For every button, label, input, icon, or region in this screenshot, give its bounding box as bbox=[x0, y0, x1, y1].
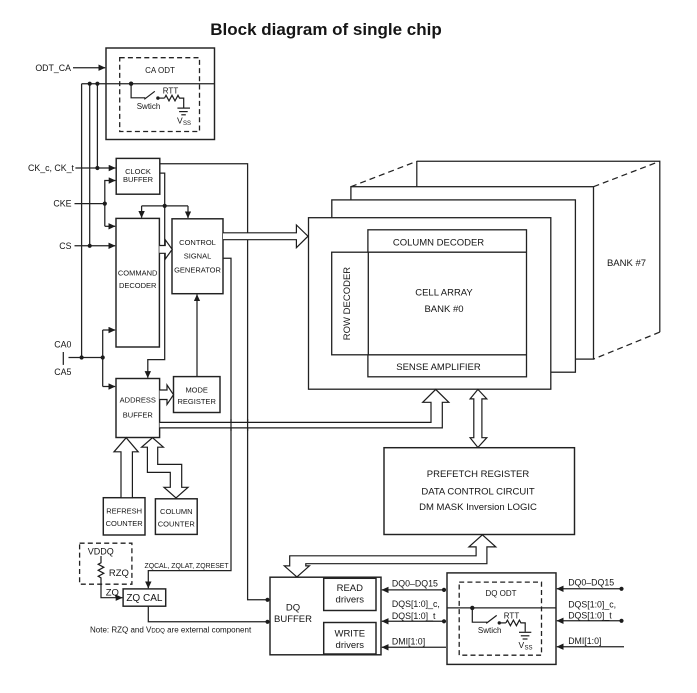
svg-text:CONTROL: CONTROL bbox=[179, 238, 216, 247]
svg-text:DQ: DQ bbox=[286, 602, 300, 613]
svg-text:ZQ CAL: ZQ CAL bbox=[126, 593, 163, 604]
svg-text:RZQ: RZQ bbox=[109, 568, 129, 579]
svg-text:COUNTER: COUNTER bbox=[106, 519, 144, 528]
svg-text:CA0: CA0 bbox=[54, 339, 71, 349]
svg-text:DATA CONTROL CIRCUIT: DATA CONTROL CIRCUIT bbox=[421, 487, 534, 498]
svg-text:COLUMN: COLUMN bbox=[160, 507, 193, 516]
svg-text:ODT_CA: ODT_CA bbox=[35, 63, 71, 73]
svg-text:MODE: MODE bbox=[185, 386, 208, 395]
svg-text:ADDRESS: ADDRESS bbox=[120, 396, 156, 405]
svg-text:COMMAND: COMMAND bbox=[118, 268, 158, 277]
svg-text:DQS[1:0]_c,: DQS[1:0]_c, bbox=[568, 600, 616, 610]
svg-text:CS: CS bbox=[59, 241, 71, 251]
svg-text:CK_c, CK_t: CK_c, CK_t bbox=[28, 163, 75, 173]
svg-text:CA5: CA5 bbox=[54, 367, 71, 377]
svg-text:REFRESH: REFRESH bbox=[106, 506, 142, 515]
svg-text:Note: RZQ and VDDQ are externa: Note: RZQ and VDDQ are external componen… bbox=[90, 625, 252, 634]
svg-text:drivers: drivers bbox=[336, 595, 365, 606]
svg-text:COLUMN DECODER: COLUMN DECODER bbox=[393, 237, 484, 248]
svg-text:DMI[1:0]: DMI[1:0] bbox=[392, 637, 425, 647]
svg-text:SS: SS bbox=[525, 645, 533, 651]
svg-text:REGISTER: REGISTER bbox=[178, 397, 217, 406]
svg-text:DM MASK Inversion LOGIC: DM MASK Inversion LOGIC bbox=[419, 502, 537, 513]
svg-text:CELL ARRAY: CELL ARRAY bbox=[415, 287, 473, 298]
svg-text:DMI[1:0]: DMI[1:0] bbox=[568, 636, 601, 646]
svg-text:READ: READ bbox=[337, 583, 364, 594]
svg-text:CA ODT: CA ODT bbox=[145, 66, 175, 75]
svg-text:ZQ: ZQ bbox=[106, 587, 119, 598]
svg-text:CKE: CKE bbox=[53, 199, 71, 209]
svg-text:DQ ODT: DQ ODT bbox=[485, 589, 516, 598]
svg-text:DECODER: DECODER bbox=[119, 281, 157, 290]
svg-text:BUFFER: BUFFER bbox=[123, 175, 154, 184]
svg-text:SS: SS bbox=[183, 121, 191, 127]
svg-text:RTT: RTT bbox=[504, 611, 520, 620]
svg-text:DQS[1:0]_t: DQS[1:0]_t bbox=[392, 611, 436, 621]
svg-text:RTT: RTT bbox=[163, 87, 179, 96]
svg-text:Block diagram of single chip: Block diagram of single chip bbox=[210, 20, 441, 39]
svg-text:BANK #0: BANK #0 bbox=[424, 304, 463, 315]
svg-text:SENSE AMPLIFIER: SENSE AMPLIFIER bbox=[396, 362, 481, 373]
svg-text:Swtich: Swtich bbox=[137, 102, 161, 111]
svg-text:WRITE: WRITE bbox=[334, 629, 365, 640]
svg-text:COUNTER: COUNTER bbox=[158, 519, 196, 528]
svg-text:BANK #7: BANK #7 bbox=[607, 258, 646, 269]
svg-text:GENERATOR: GENERATOR bbox=[174, 266, 221, 275]
svg-text:Swtich: Swtich bbox=[478, 626, 502, 635]
svg-text:PREFETCH REGISTER: PREFETCH REGISTER bbox=[427, 469, 530, 480]
svg-text:BUFFER: BUFFER bbox=[123, 410, 154, 419]
svg-text:SIGNAL: SIGNAL bbox=[184, 251, 212, 260]
svg-text:VDDQ: VDDQ bbox=[88, 547, 114, 557]
svg-text:ZQCAL, ZQLAT, ZQRESET: ZQCAL, ZQLAT, ZQRESET bbox=[145, 563, 230, 570]
svg-text:drivers: drivers bbox=[336, 640, 365, 651]
svg-text:DQS[1:0]_c,: DQS[1:0]_c, bbox=[392, 599, 440, 609]
svg-text:ROW DECODER: ROW DECODER bbox=[342, 267, 353, 341]
svg-text:DQS[1:0]_t: DQS[1:0]_t bbox=[568, 610, 612, 620]
svg-text:BUFFER: BUFFER bbox=[274, 614, 312, 625]
svg-text:DQ0–DQ15: DQ0–DQ15 bbox=[568, 578, 614, 588]
svg-text:DQ0–DQ15: DQ0–DQ15 bbox=[392, 579, 438, 589]
